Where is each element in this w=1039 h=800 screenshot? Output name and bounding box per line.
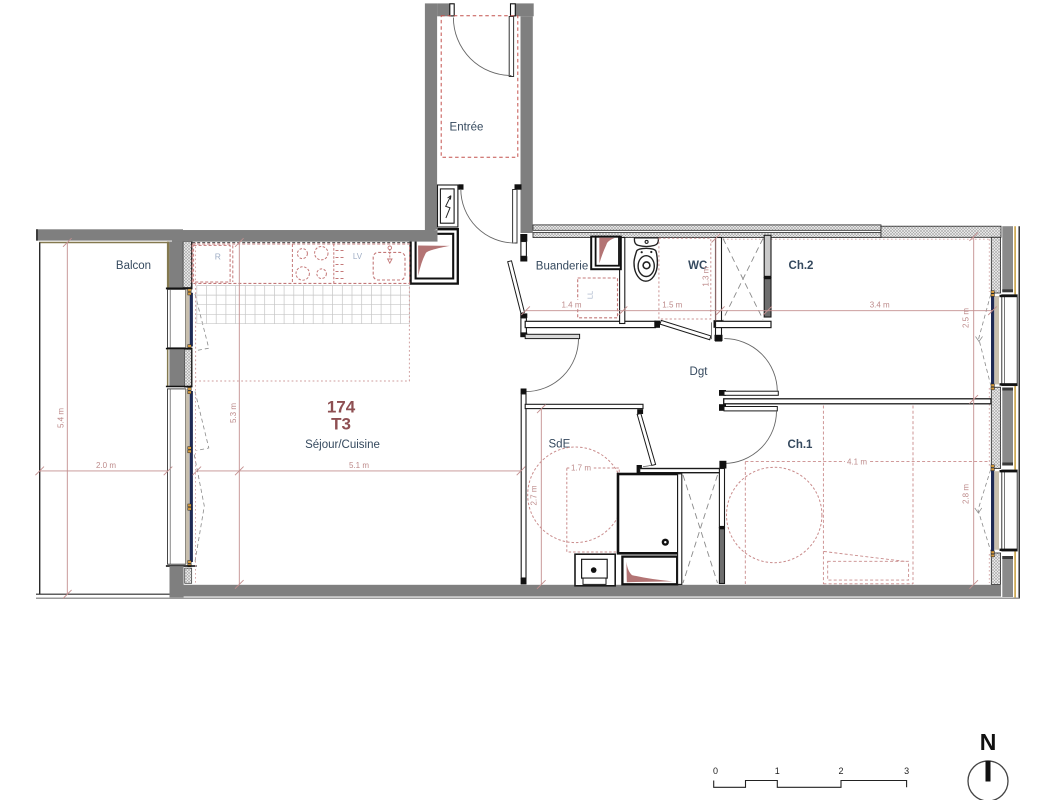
svg-text:Ch.2: Ch.2 — [789, 260, 814, 272]
svg-text:2.7 m: 2.7 m — [530, 485, 539, 505]
svg-text:Ch.1: Ch.1 — [788, 439, 814, 451]
svg-text:3.4 m: 3.4 m — [870, 300, 890, 309]
svg-text:R: R — [215, 252, 221, 262]
svg-text:Entrée: Entrée — [450, 122, 484, 134]
svg-text:1.3 m: 1.3 m — [702, 266, 711, 286]
svg-text:SdE: SdE — [549, 438, 571, 450]
svg-text:1.5 m: 1.5 m — [662, 300, 682, 309]
svg-text:2.8 m: 2.8 m — [962, 484, 971, 504]
svg-text:Balcon: Balcon — [116, 260, 151, 272]
svg-text:Buanderie: Buanderie — [536, 260, 588, 272]
svg-text:4.1 m: 4.1 m — [847, 458, 867, 467]
svg-text:LV: LV — [353, 252, 363, 261]
svg-text:2.0 m: 2.0 m — [96, 461, 116, 470]
svg-text:Dgt: Dgt — [690, 366, 709, 378]
svg-text:0: 0 — [713, 766, 718, 776]
svg-text:2: 2 — [838, 766, 843, 776]
svg-text:T3: T3 — [331, 415, 351, 434]
svg-text:5.4 m: 5.4 m — [57, 408, 66, 428]
svg-text:1.4 m: 1.4 m — [561, 300, 581, 309]
svg-text:5.3 m: 5.3 m — [229, 403, 238, 423]
svg-text:1: 1 — [775, 766, 780, 776]
svg-text:N: N — [980, 729, 997, 755]
svg-text:3: 3 — [904, 766, 909, 776]
svg-text:Séjour/Cuisine: Séjour/Cuisine — [305, 439, 380, 451]
svg-text:LL: LL — [586, 291, 595, 299]
svg-text:2.5 m: 2.5 m — [962, 308, 971, 328]
svg-text:5.1 m: 5.1 m — [349, 461, 369, 470]
svg-text:1.7 m: 1.7 m — [571, 463, 591, 472]
